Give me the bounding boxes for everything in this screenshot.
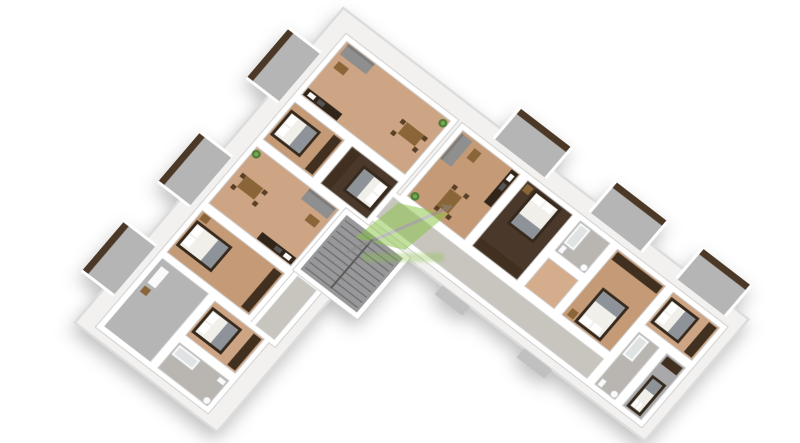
watermark-text-bar (362, 253, 444, 262)
render-viewport (0, 0, 800, 443)
floorplan-svg (0, 0, 800, 443)
